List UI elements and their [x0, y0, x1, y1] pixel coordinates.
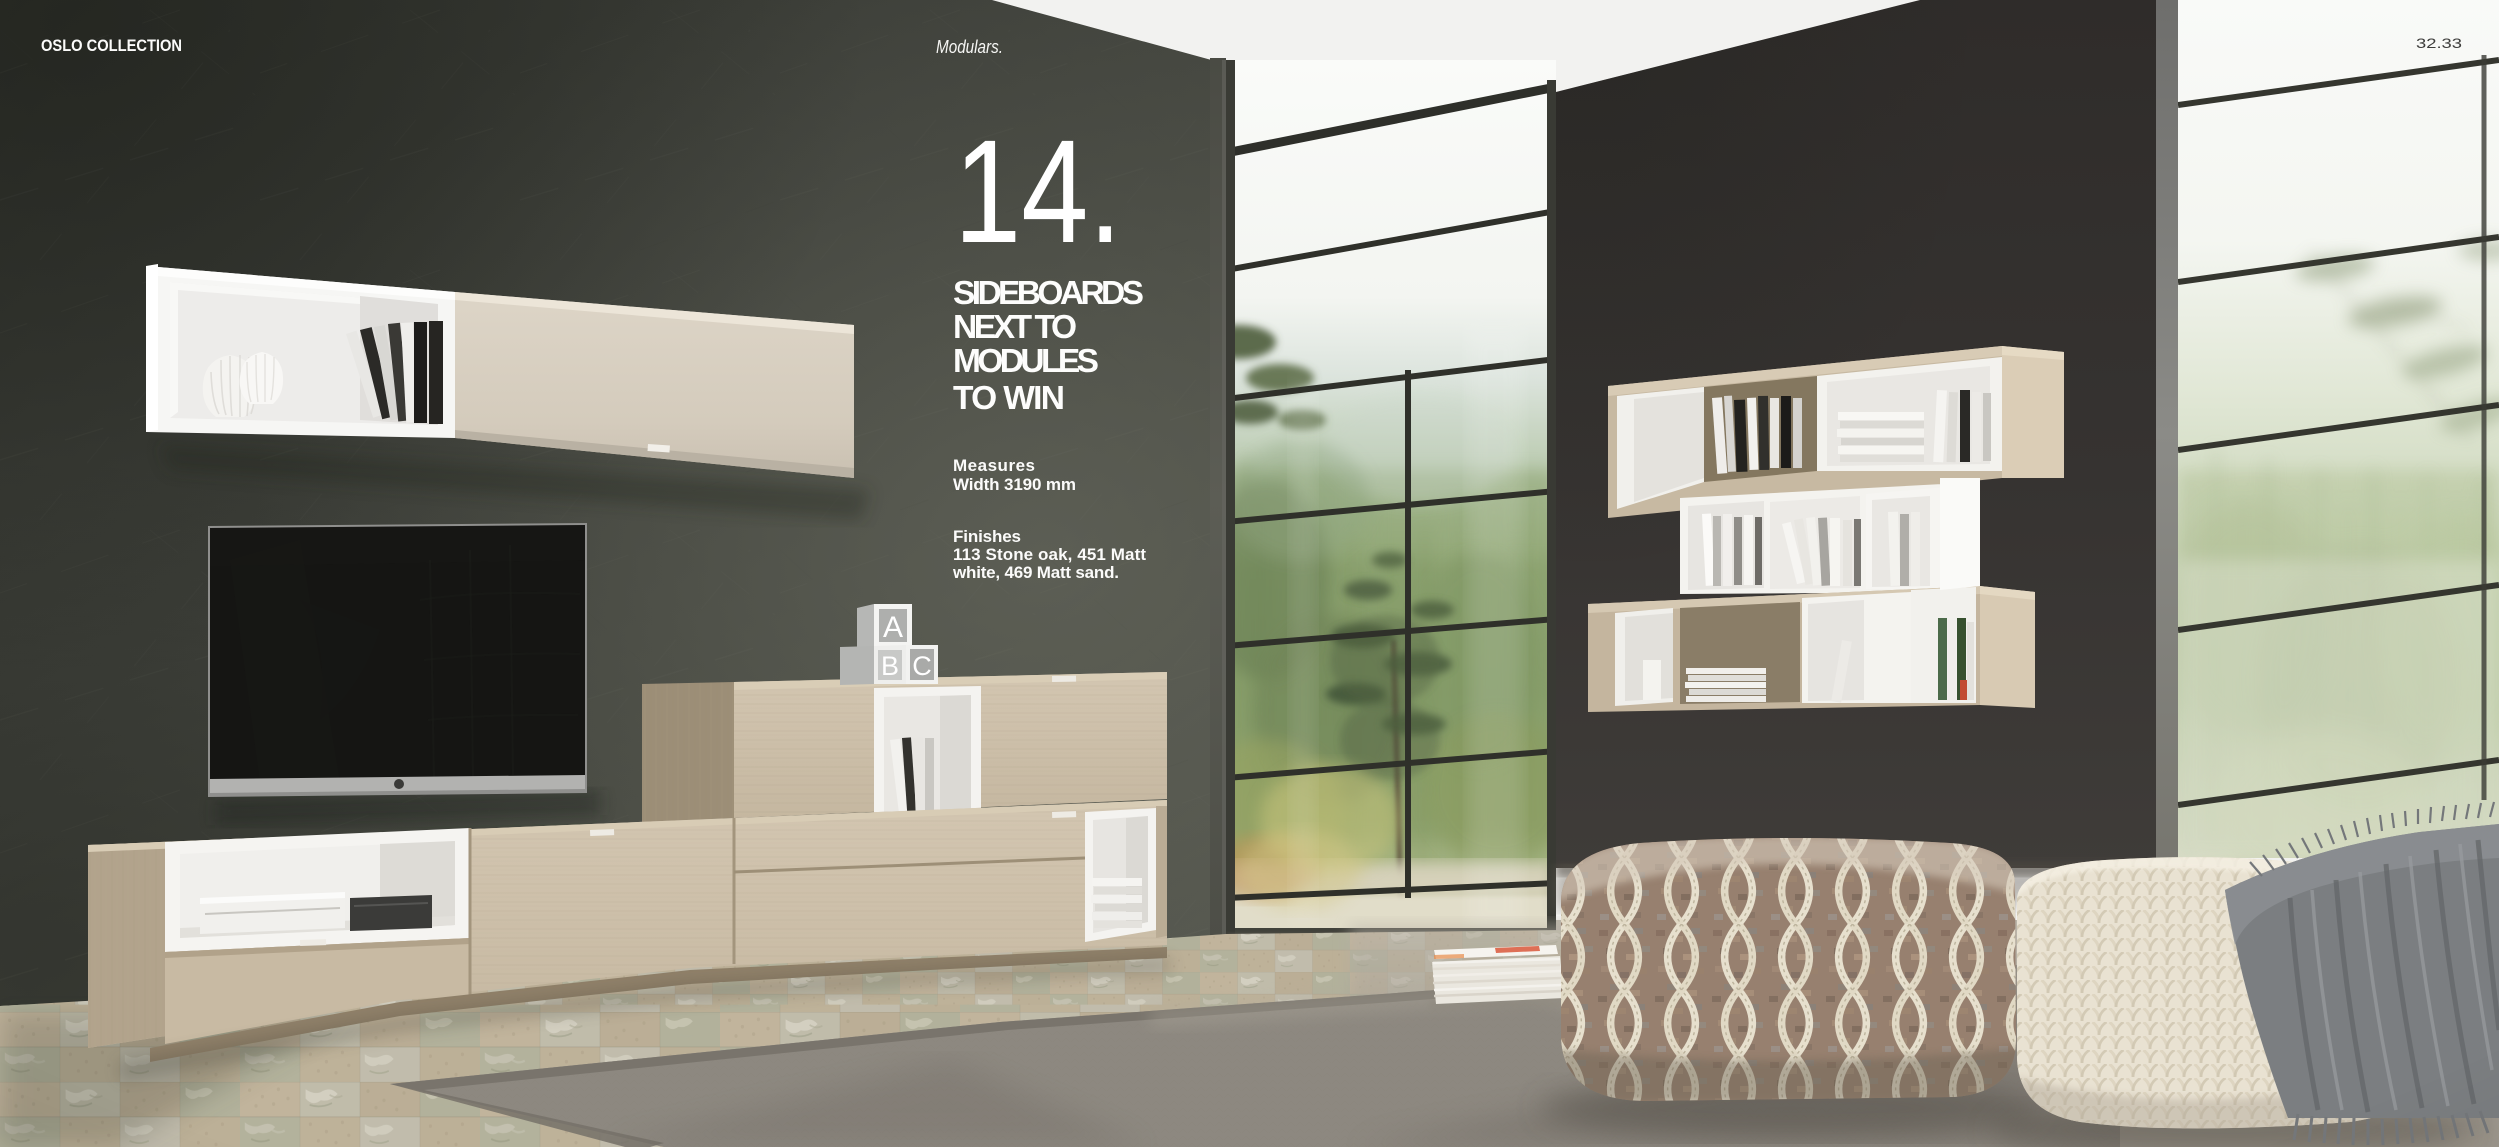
svg-text:NEXT TO: NEXT TO — [953, 309, 1077, 346]
svg-text:Finishes: Finishes — [953, 527, 1021, 546]
svg-text:Modulars.: Modulars. — [936, 37, 1003, 57]
svg-text:113 Stone oak, 451 Matt: 113 Stone oak, 451 Matt — [953, 545, 1146, 564]
svg-text:14.: 14. — [954, 110, 1122, 274]
svg-text:32.33: 32.33 — [2416, 35, 2462, 51]
svg-text:SIDEBOARDS: SIDEBOARDS — [953, 275, 1144, 312]
svg-text:white, 469 Matt sand.: white, 469 Matt sand. — [952, 563, 1119, 582]
svg-text:Width 3190 mm: Width 3190 mm — [953, 475, 1076, 494]
svg-text:MODULES: MODULES — [953, 343, 1099, 380]
svg-text:Measures: Measures — [953, 456, 1035, 475]
svg-text:OSLO COLLECTION: OSLO COLLECTION — [41, 36, 182, 55]
svg-text:TO WIN: TO WIN — [953, 380, 1065, 417]
